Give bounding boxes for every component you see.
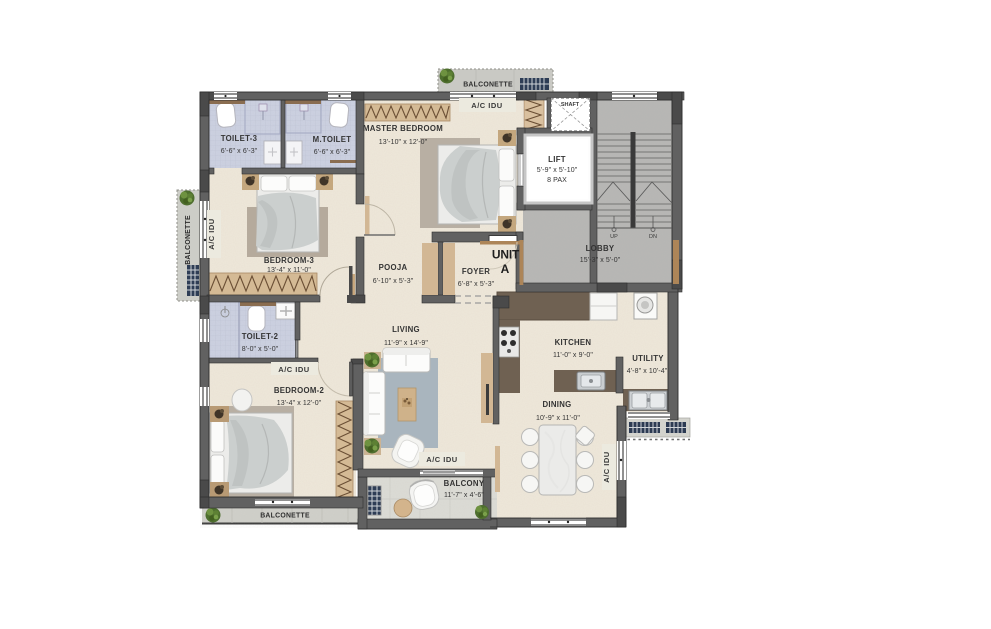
svg-text:6'-10" x 5'-3": 6'-10" x 5'-3" xyxy=(373,278,414,285)
svg-text:6'-6" x 6'-3": 6'-6" x 6'-3" xyxy=(314,149,351,156)
svg-text:KITCHEN: KITCHEN xyxy=(555,338,592,347)
svg-text:UTILITY: UTILITY xyxy=(632,354,664,363)
svg-text:BALCONY: BALCONY xyxy=(444,479,485,488)
svg-text:11'-7" x 4'-6": 11'-7" x 4'-6" xyxy=(444,492,484,499)
svg-text:A/C IDU: A/C IDU xyxy=(602,451,611,482)
svg-text:LIVING: LIVING xyxy=(392,325,420,334)
svg-text:TOILET-2: TOILET-2 xyxy=(242,332,279,341)
svg-text:8'-0" x 5'-0": 8'-0" x 5'-0" xyxy=(242,346,279,353)
svg-text:15'-3" x 5'-0": 15'-3" x 5'-0" xyxy=(580,257,621,264)
svg-text:DINING: DINING xyxy=(542,400,571,409)
svg-text:BALCONETTE: BALCONETTE xyxy=(185,215,192,265)
svg-text:8 PAX: 8 PAX xyxy=(547,177,567,184)
svg-text:SHAFT: SHAFT xyxy=(561,102,580,108)
svg-text:A: A xyxy=(501,262,510,276)
svg-text:4'-8" x 10'-4": 4'-8" x 10'-4" xyxy=(627,368,668,375)
svg-text:BEDROOM-2: BEDROOM-2 xyxy=(274,386,325,395)
svg-text:MASTER BEDROOM: MASTER BEDROOM xyxy=(363,124,443,133)
svg-text:A/C IDU: A/C IDU xyxy=(278,365,309,374)
svg-text:DN: DN xyxy=(649,234,657,240)
svg-text:LOBBY: LOBBY xyxy=(586,244,615,253)
svg-text:POOJA: POOJA xyxy=(379,263,408,272)
svg-text:13'-4" x 11'-0": 13'-4" x 11'-0" xyxy=(267,267,311,274)
svg-text:13'-4" x 12'-0": 13'-4" x 12'-0" xyxy=(277,400,322,407)
svg-text:A/C IDU: A/C IDU xyxy=(471,101,502,110)
svg-text:6'-8" x 5'-3": 6'-8" x 5'-3" xyxy=(458,281,495,288)
svg-text:BEDROOM-3: BEDROOM-3 xyxy=(264,256,315,265)
svg-text:11'-0" x 9'-0": 11'-0" x 9'-0" xyxy=(553,352,593,359)
svg-text:BALCONETTE: BALCONETTE xyxy=(260,513,310,520)
svg-text:13'-10" x 12'-0": 13'-10" x 12'-0" xyxy=(379,139,428,146)
svg-text:BALCONETTE: BALCONETTE xyxy=(463,82,513,89)
svg-text:11'-9" x 14'-9": 11'-9" x 14'-9" xyxy=(384,340,428,347)
svg-text:UNIT: UNIT xyxy=(492,248,520,262)
svg-text:M.TOILET: M.TOILET xyxy=(313,135,352,144)
svg-text:6'-6" x 6'-3": 6'-6" x 6'-3" xyxy=(221,148,258,155)
svg-text:5'-9" x 5'-10": 5'-9" x 5'-10" xyxy=(537,167,578,174)
svg-text:A/C IDU: A/C IDU xyxy=(207,218,216,249)
svg-text:TOILET-3: TOILET-3 xyxy=(221,134,258,143)
svg-text:10'-9" x 11'-0": 10'-9" x 11'-0" xyxy=(536,415,580,422)
svg-text:LIFT: LIFT xyxy=(548,155,566,164)
svg-text:A/C IDU: A/C IDU xyxy=(426,455,457,464)
svg-text:UP: UP xyxy=(610,234,618,240)
svg-text:FOYER: FOYER xyxy=(462,267,490,276)
